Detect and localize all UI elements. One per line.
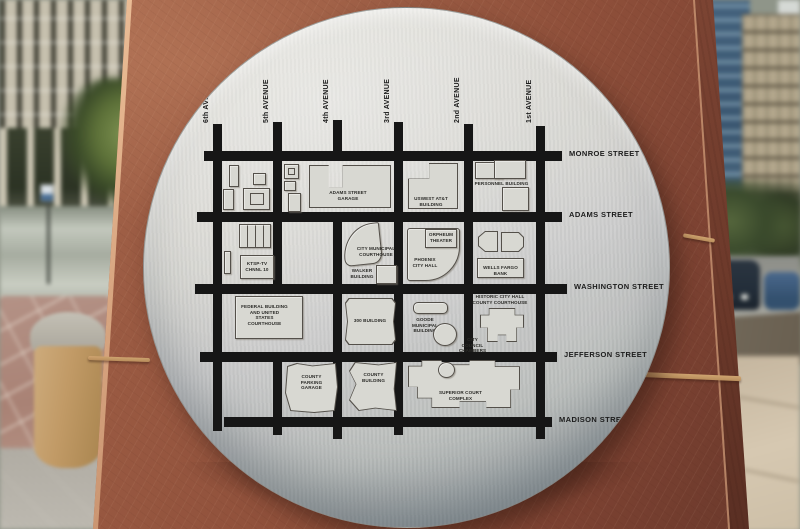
building-footprint <box>376 265 397 284</box>
blue-car <box>764 272 800 310</box>
building-fill <box>481 309 523 341</box>
avenue-bar <box>213 124 222 431</box>
metal-map-plaque: MONROE STREETADAMS STREETWASHINGTON STRE… <box>143 7 670 528</box>
building-footprint <box>284 164 299 179</box>
building-footprint <box>229 165 239 187</box>
building-footprint <box>413 302 448 314</box>
building-label: FEDERAL BUILDING AND UNITED STATES COURT… <box>241 304 288 326</box>
building-footprint <box>223 189 234 210</box>
building-label: SUPERIOR COURT COMPLEX <box>428 390 493 401</box>
building-label: CITY MUNICIPAL COURTHOUSE <box>356 246 396 257</box>
building-footprint <box>494 160 526 179</box>
street-label: JEFFERSON STREET <box>564 351 647 359</box>
building-footprint <box>224 251 231 274</box>
plaque-map: MONROE STREETADAMS STREETWASHINGTON STRE… <box>144 8 669 527</box>
building-footprint <box>349 362 397 411</box>
building-label: WALKER BUILDING <box>349 268 375 279</box>
building-label: 300 BUILDING <box>350 318 390 324</box>
street-label: ADAMS STREET <box>569 211 633 219</box>
building-footprint <box>501 232 524 252</box>
avenue-bar <box>273 122 282 284</box>
avenue-label: 5th AVENUE <box>262 63 271 123</box>
avenue-label: 6th AVENUE <box>202 63 211 123</box>
building-label: USWEST AT&T BUILDING <box>410 196 452 207</box>
building-footprint <box>288 193 301 212</box>
avenue-label: 4th AVENUE <box>322 63 331 123</box>
street-label: MADISON STREET <box>559 416 632 424</box>
building-footprint <box>502 187 529 211</box>
building-label: COUNTY PARKING GARAGE <box>295 374 328 391</box>
building-footprint <box>478 231 498 252</box>
building-footprint <box>438 362 455 378</box>
street-label: MONROE STREET <box>569 150 640 158</box>
building-fill <box>479 232 497 251</box>
building-label: ORPHEUM THEATER <box>427 232 455 243</box>
building-inner-court <box>250 193 264 204</box>
building-label: KTSP-TV CHNNL 10 <box>242 261 272 272</box>
building-label: HISTORIC CITY HALL COUNTY COURTHOUSE <box>471 294 529 305</box>
building-label: PERSONNEL BUILDING <box>474 181 529 187</box>
building-label: ADAMS STREET GARAGE <box>322 190 374 201</box>
avenue-bar <box>536 126 545 439</box>
building-label: PHOENIX CITY HALL <box>409 257 441 268</box>
building-fill <box>502 233 523 251</box>
building-footprint <box>341 222 383 267</box>
building-fill <box>350 363 396 410</box>
building-label: COUNTY BUILDING <box>358 372 389 383</box>
avenue-label: 2nd AVENUE <box>453 63 462 123</box>
avenue-label: 3rd AVENUE <box>383 63 392 123</box>
building-footprint <box>284 181 296 191</box>
building-inner-court <box>288 168 295 175</box>
building-label: CITY COUNCIL CHAMBERS <box>456 337 489 354</box>
street-bar <box>197 212 562 222</box>
avenue-bar <box>464 124 473 356</box>
photo-of-map-plaque: MONROE STREETADAMS STREETWASHINGTON STRE… <box>0 0 800 529</box>
avenue-bar <box>333 120 342 156</box>
street-label: WASHINGTON STREET <box>574 283 664 291</box>
building-footprint <box>243 188 270 210</box>
building-footprint <box>433 323 457 346</box>
street-bar <box>200 352 557 362</box>
avenue-bar <box>273 352 282 435</box>
building-footprint <box>309 165 391 208</box>
building-footprint <box>239 224 271 248</box>
building-footprint <box>253 173 266 185</box>
building-label: WELLS FARGO BANK <box>479 265 522 276</box>
avenue-label: 1st AVENUE <box>525 63 534 123</box>
street-bar <box>195 284 567 294</box>
